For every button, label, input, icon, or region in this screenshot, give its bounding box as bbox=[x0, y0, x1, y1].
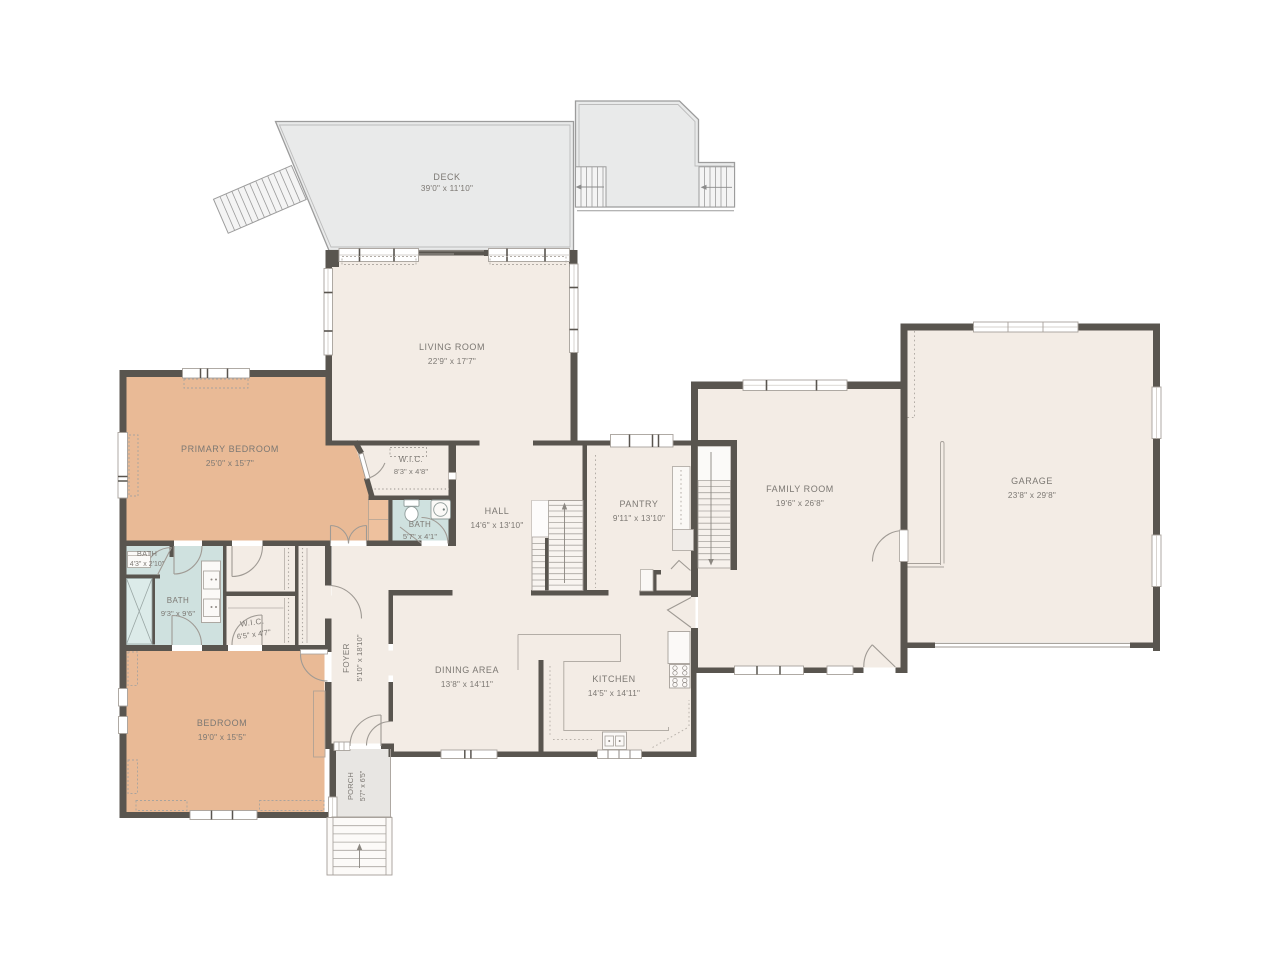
svg-text:GARAGE: GARAGE bbox=[1011, 476, 1053, 486]
svg-text:PRIMARY BEDROOM: PRIMARY BEDROOM bbox=[181, 444, 279, 454]
svg-text:HALL: HALL bbox=[485, 506, 510, 516]
svg-text:4'3" x 2'10": 4'3" x 2'10" bbox=[130, 561, 165, 568]
svg-text:25'0" x 15'7": 25'0" x 15'7" bbox=[206, 459, 254, 468]
svg-text:PANTRY: PANTRY bbox=[620, 499, 659, 509]
svg-text:39'0" x 11'10": 39'0" x 11'10" bbox=[421, 184, 473, 193]
svg-text:22'9" x 17'7": 22'9" x 17'7" bbox=[428, 357, 476, 366]
svg-text:LIVING ROOM: LIVING ROOM bbox=[419, 342, 485, 352]
svg-text:DECK: DECK bbox=[433, 172, 460, 182]
svg-text:BATH: BATH bbox=[167, 596, 190, 605]
svg-text:19'0" x 15'5": 19'0" x 15'5" bbox=[198, 733, 246, 742]
svg-text:8'3" x 4'8": 8'3" x 4'8" bbox=[394, 467, 429, 476]
svg-text:FOYER: FOYER bbox=[342, 643, 351, 673]
svg-text:BATH: BATH bbox=[409, 520, 432, 529]
svg-text:BEDROOM: BEDROOM bbox=[197, 718, 247, 728]
svg-text:FAMILY ROOM: FAMILY ROOM bbox=[766, 484, 834, 494]
svg-text:9'11" x 13'10": 9'11" x 13'10" bbox=[613, 514, 665, 523]
svg-text:13'8" x 14'11": 13'8" x 14'11" bbox=[441, 680, 493, 689]
svg-text:PORCH: PORCH bbox=[346, 772, 355, 800]
svg-text:5'7" x 6'5": 5'7" x 6'5" bbox=[360, 770, 367, 801]
svg-text:DINING AREA: DINING AREA bbox=[435, 665, 499, 675]
svg-text:19'6" x 26'8": 19'6" x 26'8" bbox=[776, 499, 824, 508]
svg-text:KITCHEN: KITCHEN bbox=[592, 674, 635, 684]
svg-text:5'10" x 18'10": 5'10" x 18'10" bbox=[355, 634, 364, 681]
svg-text:23'8" x 29'8": 23'8" x 29'8" bbox=[1008, 491, 1056, 500]
svg-text:BATH: BATH bbox=[137, 549, 157, 558]
svg-text:14'5" x 14'11": 14'5" x 14'11" bbox=[588, 689, 640, 698]
svg-text:14'6" x 13'10": 14'6" x 13'10" bbox=[471, 521, 524, 530]
svg-text:9'3" x 9'6": 9'3" x 9'6" bbox=[161, 609, 196, 618]
svg-text:W.I.C.: W.I.C. bbox=[399, 455, 423, 464]
svg-text:5'7" x 4'1": 5'7" x 4'1" bbox=[403, 532, 438, 541]
